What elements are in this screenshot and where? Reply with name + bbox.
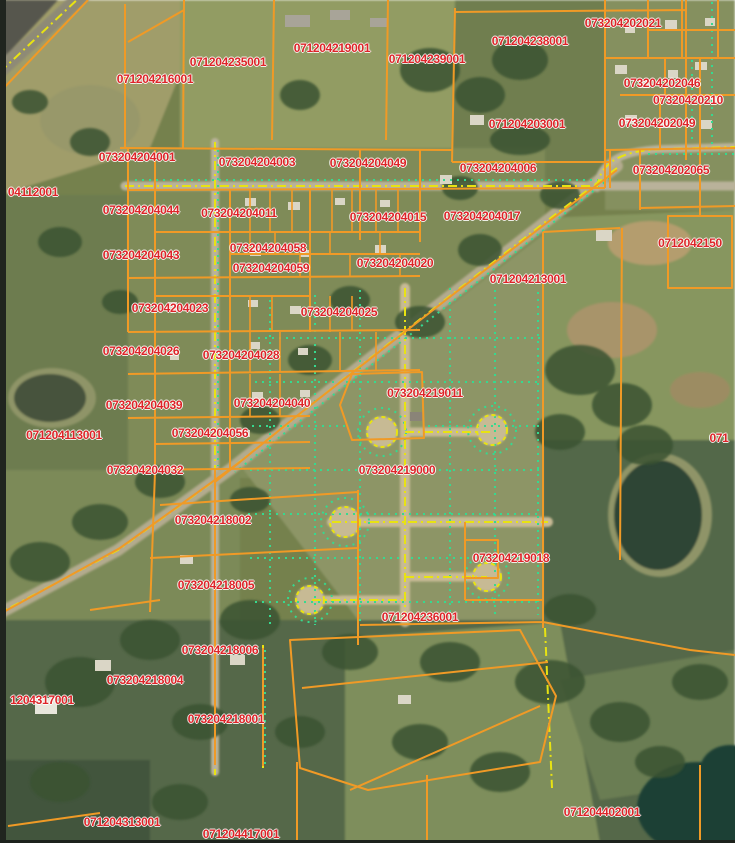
parcel-label: 073204204056 — [172, 426, 249, 440]
parcel-label: 071204219001 — [294, 41, 371, 55]
parcel-label: 073204204017 — [444, 209, 521, 223]
parcel-label: 073204204015 — [350, 210, 427, 224]
parcel-labels-layer: 0712042160010712042350010712042190010712… — [0, 0, 735, 843]
parcel-label: 073204204006 — [460, 161, 537, 175]
parcel-label: 071204239001 — [389, 52, 466, 66]
parcel-label: 073204218006 — [182, 643, 259, 657]
parcel-label: 073204204003 — [219, 155, 296, 169]
parcel-label: 071204235001 — [190, 55, 267, 69]
parcel-label: 073204204028 — [203, 348, 280, 362]
parcel-label: 071204213001 — [490, 272, 567, 286]
parcel-label: 073204204059 — [233, 261, 310, 275]
parcel-label: 071 — [709, 431, 728, 445]
parcel-label: 071204417001 — [203, 827, 280, 841]
parcel-label: 071204402001 — [564, 805, 641, 819]
parcel-label: 073204204040 — [234, 396, 311, 410]
parcel-label: 073204218002 — [175, 513, 252, 527]
parcel-label: 073204218001 — [188, 712, 265, 726]
parcel-label: 071204313001 — [84, 815, 161, 829]
parcel-label: 04112001 — [8, 185, 58, 199]
parcel-label: 071204238001 — [492, 34, 569, 48]
parcel-label: 073204204025 — [301, 305, 378, 319]
parcel-label: 073204202021 — [585, 16, 662, 30]
parcel-label: 073204204039 — [106, 398, 183, 412]
parcel-label: 073204204044 — [103, 203, 180, 217]
parcel-label: 073204204020 — [357, 256, 434, 270]
parcel-label: 073204204026 — [103, 344, 180, 358]
parcel-label: 073204219018 — [473, 551, 550, 565]
parcel-label: 07320420210 — [653, 93, 723, 107]
parcel-label: 073204218005 — [178, 578, 255, 592]
parcel-label: 1204317001 — [10, 693, 74, 707]
parcel-label: 073204204001 — [99, 150, 176, 164]
parcel-label: 073204204023 — [132, 301, 209, 315]
parcel-label: 073204204058 — [230, 241, 307, 255]
parcel-label: 071204236001 — [382, 610, 459, 624]
parcel-label: 073204219011 — [387, 386, 463, 400]
parcel-label: 073204218004 — [107, 673, 184, 687]
parcel-label: 071204113001 — [26, 428, 102, 442]
parcel-label: 073204204043 — [103, 248, 180, 262]
parcel-label: 071204216001 — [117, 72, 194, 86]
gis-parcel-map-viewport[interactable]: 0712042160010712042350010712042190010712… — [0, 0, 735, 855]
parcel-label: 073204202065 — [633, 163, 710, 177]
parcel-label: 073204204049 — [330, 156, 407, 170]
parcel-label: 0712042150 — [658, 236, 722, 250]
parcel-label: 073204202046 — [624, 76, 701, 90]
parcel-label: 073204204011 — [201, 206, 277, 220]
parcel-label: 073204204032 — [107, 463, 184, 477]
parcel-label: 073204219000 — [359, 463, 436, 477]
parcel-label: 071204203001 — [489, 117, 566, 131]
map-footer: 1:4,511 MARIS — [0, 843, 735, 855]
parcel-label: 073204202049 — [619, 116, 696, 130]
